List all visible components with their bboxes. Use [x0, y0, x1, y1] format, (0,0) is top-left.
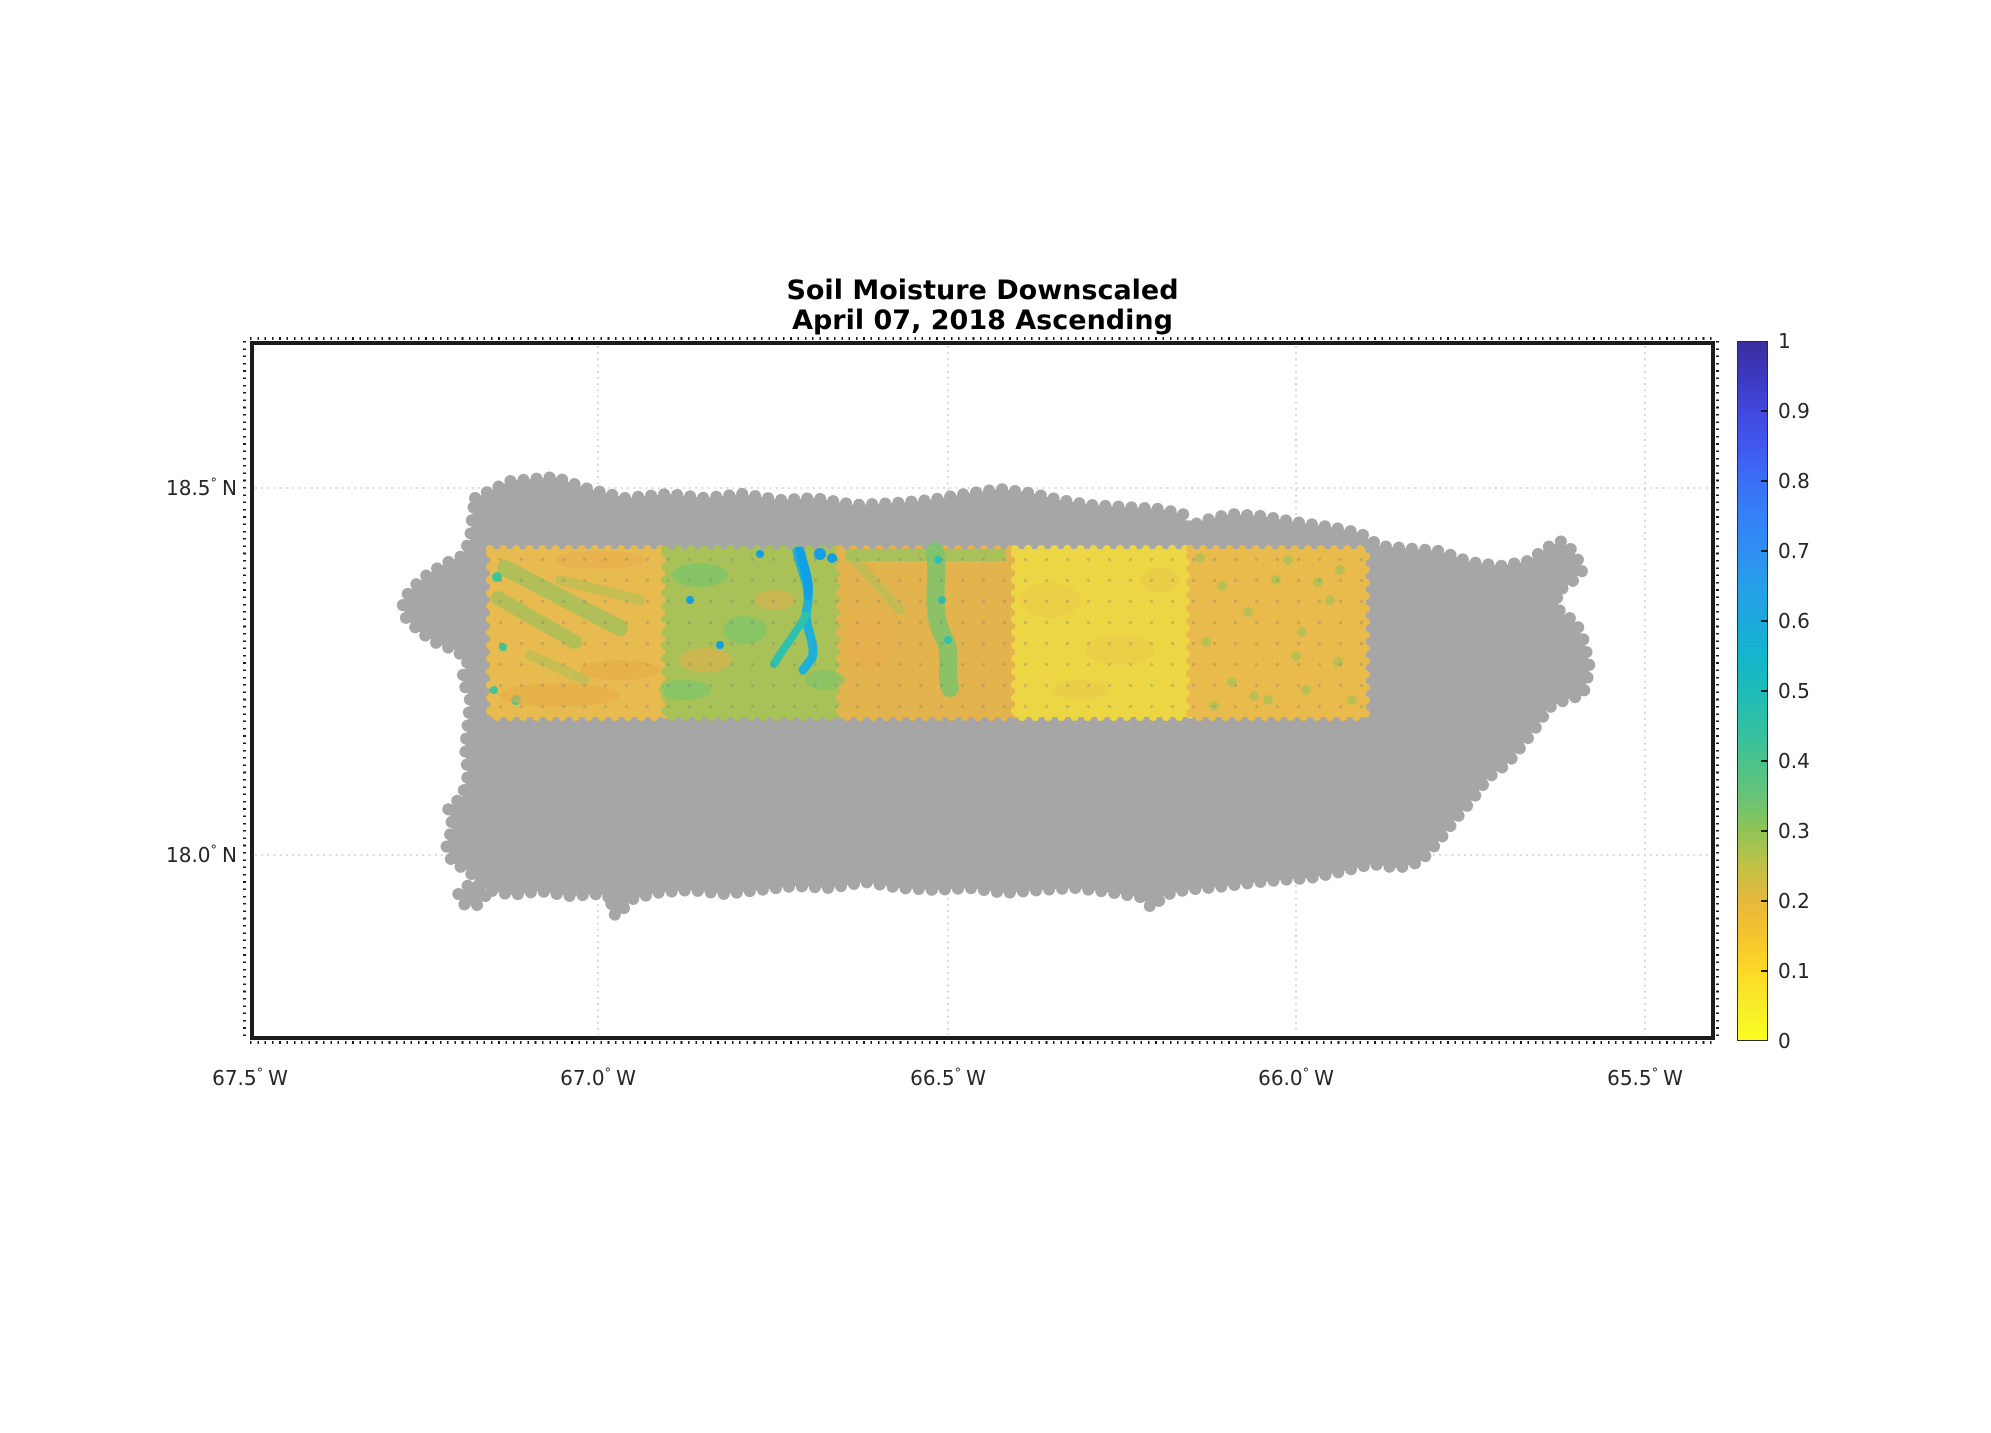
olive-speck: [1243, 607, 1253, 617]
olive-speck: [1195, 553, 1205, 563]
hemisphere-label: W: [616, 1066, 636, 1090]
olive-speck: [1271, 575, 1281, 585]
hemisphere-label: N: [222, 476, 237, 500]
colorbar-label-0-9: 0.9: [1778, 399, 1838, 423]
mottle: [1052, 680, 1108, 700]
minor-ticks-bottom: [250, 1041, 1715, 1044]
mottle: [1085, 635, 1155, 665]
colorbar-label-0-1: 0.1: [1778, 959, 1838, 983]
x-tick-value: 65.5: [1607, 1066, 1652, 1090]
x-tick-66-5: 66.5°W: [878, 1066, 1018, 1090]
olive-speck: [1313, 577, 1323, 587]
teal-speck: [499, 643, 507, 651]
degree-symbol: °: [211, 476, 218, 491]
island-offshore-blob: [610, 901, 624, 915]
cyan-speck: [756, 550, 764, 558]
teal-speck: [934, 556, 942, 564]
cyan-speck: [716, 641, 724, 649]
mottle: [1020, 582, 1080, 618]
colorbar-tick: [1761, 550, 1768, 552]
minor-ticks-right: [1716, 341, 1719, 1040]
degree-symbol: °: [1652, 1066, 1659, 1081]
green-patch: [672, 563, 728, 587]
hemisphere-label: W: [1663, 1066, 1683, 1090]
colorbar-tick: [1761, 830, 1768, 832]
colorbar-tick: [1761, 690, 1768, 692]
teal-speck: [492, 572, 502, 582]
green-patch: [723, 616, 767, 644]
degree-symbol: °: [955, 1066, 962, 1081]
orange-patch: [679, 648, 731, 672]
minor-ticks-top: [250, 337, 1715, 340]
x-tick-value: 66.0: [1258, 1066, 1303, 1090]
teal-speck: [944, 636, 952, 644]
cyan-speck: [827, 553, 837, 563]
hemisphere-label: W: [268, 1066, 288, 1090]
olive-speck: [1325, 595, 1335, 605]
x-tick-67-5: 67.5°W: [180, 1066, 320, 1090]
olive-speck: [1297, 627, 1307, 637]
olive-speck: [1301, 685, 1311, 695]
degree-symbol: °: [257, 1066, 264, 1081]
olive-speck: [1283, 555, 1293, 565]
colorbar-label-0-7: 0.7: [1778, 539, 1838, 563]
olive-speck: [1201, 637, 1211, 647]
minor-ticks-left: [243, 341, 246, 1040]
orange-patch: [755, 590, 795, 610]
colorbar-tick: [1761, 900, 1768, 902]
y-tick-value: 18.0: [166, 843, 211, 867]
swath-tile-3-top-green: [845, 549, 1005, 561]
x-tick-value: 66.5: [910, 1066, 955, 1090]
olive-speck: [1335, 565, 1345, 575]
green-patch: [659, 680, 711, 700]
colorbar-label-0-4: 0.4: [1778, 749, 1838, 773]
hemisphere-label: N: [222, 843, 237, 867]
x-tick-value: 67.0: [560, 1066, 605, 1090]
colorbar-label-0-3: 0.3: [1778, 819, 1838, 843]
x-tick-65-5: 65.5°W: [1575, 1066, 1715, 1090]
teal-speck: [938, 596, 946, 604]
olive-speck: [1333, 657, 1343, 667]
olive-speck: [1291, 651, 1301, 661]
map-plot-area: [0, 0, 1991, 1433]
olive-speck: [1263, 695, 1273, 705]
colorbar-label-0-0: 0: [1778, 1029, 1838, 1053]
colorbar-label-0-2: 0.2: [1778, 889, 1838, 913]
olive-speck: [1347, 695, 1357, 705]
degree-symbol: °: [211, 843, 218, 858]
y-tick-18-0: 18.0°N: [97, 843, 237, 867]
degree-symbol: °: [1303, 1066, 1310, 1081]
colorbar-label-1-0: 1: [1778, 329, 1838, 353]
figure-canvas: Soil Moisture Downscaled April 07, 2018 …: [0, 0, 1991, 1433]
olive-speck: [1217, 581, 1227, 591]
colorbar-tick: [1761, 620, 1768, 622]
colorbar-label-0-6: 0.6: [1778, 609, 1838, 633]
x-tick-value: 67.5: [212, 1066, 257, 1090]
hemisphere-label: W: [966, 1066, 986, 1090]
x-tick-66-0: 66.0°W: [1226, 1066, 1366, 1090]
mottle: [1140, 568, 1180, 592]
orange-patch: [500, 683, 620, 707]
colorbar-tick: [1761, 410, 1768, 412]
colorbar-label-0-5: 0.5: [1778, 679, 1838, 703]
colorbar-tick: [1761, 760, 1768, 762]
orange-patch: [555, 551, 645, 569]
cyan-speck: [686, 596, 694, 604]
olive-speck: [1209, 701, 1219, 711]
x-tick-67-0: 67.0°W: [528, 1066, 668, 1090]
olive-speck: [1227, 677, 1237, 687]
olive-speck: [1249, 691, 1259, 701]
colorbar-tick: [1761, 970, 1768, 972]
colorbar-label-0-8: 0.8: [1778, 469, 1838, 493]
y-tick-value: 18.5: [166, 476, 211, 500]
degree-symbol: °: [605, 1066, 612, 1081]
teal-speck: [490, 686, 498, 694]
y-tick-18-5: 18.5°N: [97, 476, 237, 500]
orange-patch: [580, 660, 660, 680]
hemisphere-label: W: [1314, 1066, 1334, 1090]
swath-tile-3-orange: [845, 610, 895, 670]
cyan-speck: [814, 548, 826, 560]
green-patch: [805, 670, 845, 690]
colorbar-tick: [1761, 480, 1768, 482]
